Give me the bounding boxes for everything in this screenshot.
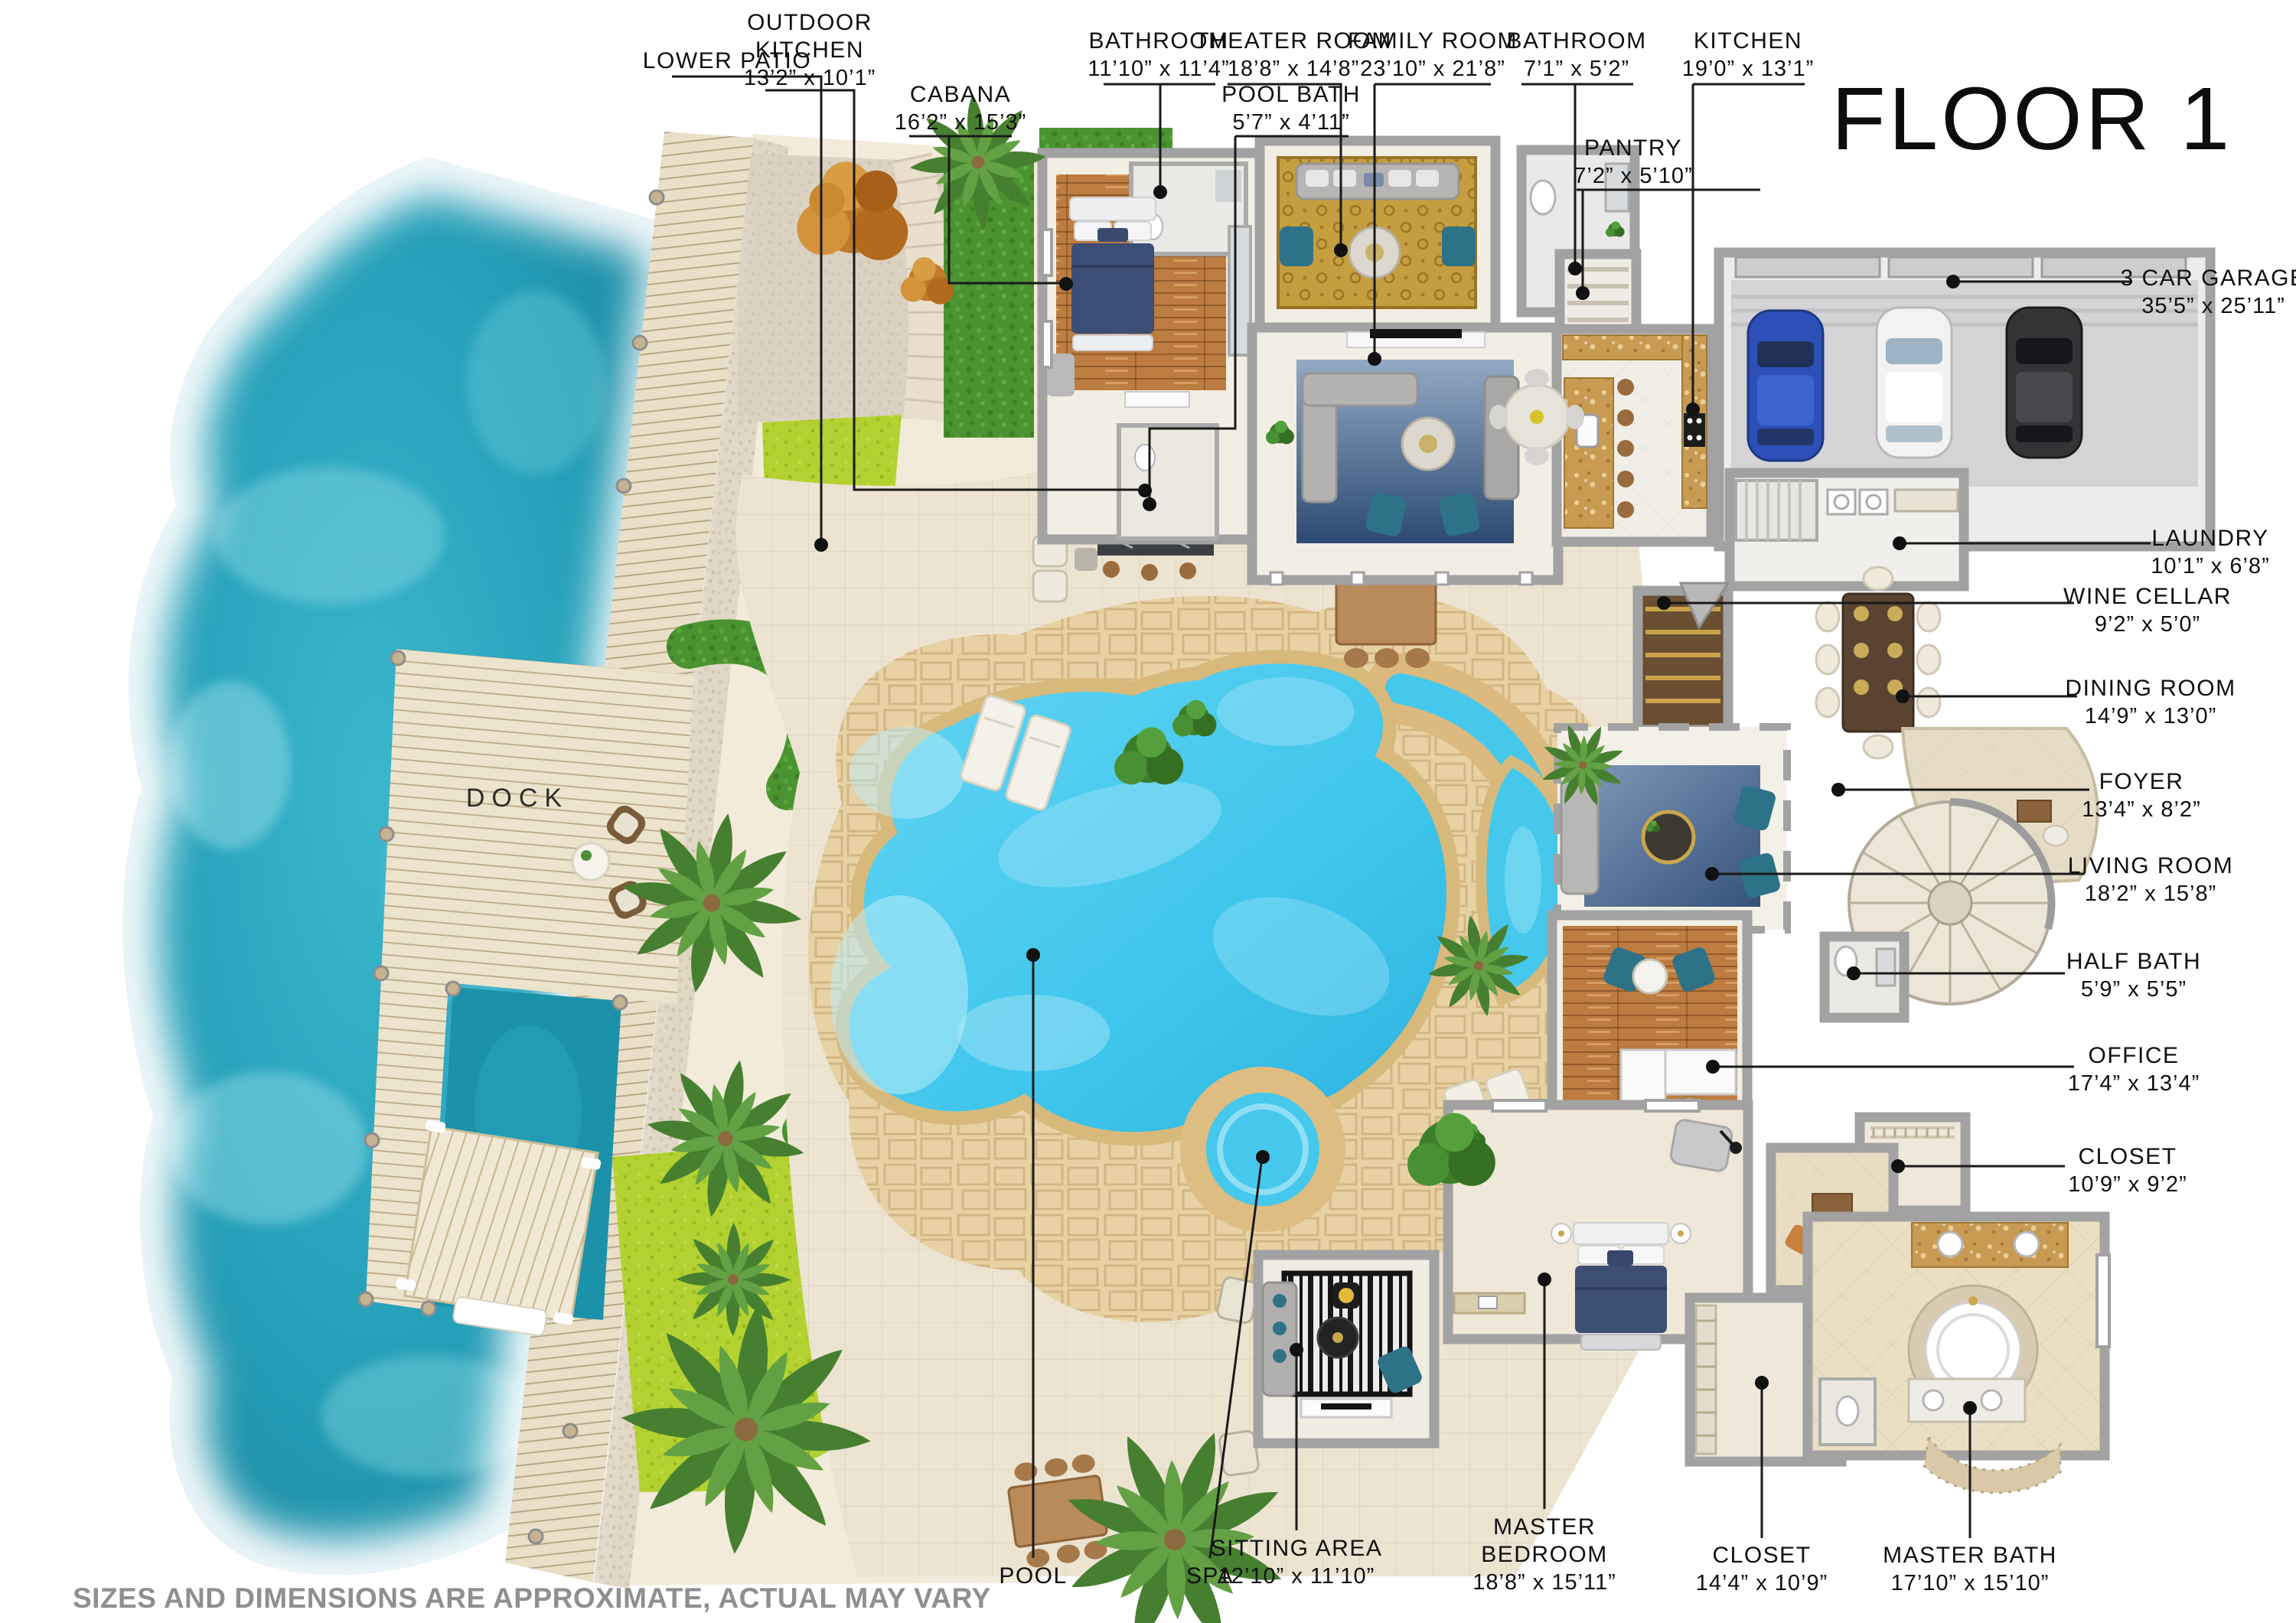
room-label-closet: CLOSET 10’9” x 9’2” — [2068, 1143, 2187, 1198]
room-label-laundry: LAUNDRY 10’1” x 6’8” — [2151, 525, 2269, 580]
room-label-cabana: CABANA 16’2” x 15’3” — [895, 81, 1027, 136]
room-label-living: LIVING ROOM 18’2” x 15’8” — [2068, 852, 2234, 908]
car-black — [2007, 308, 2082, 458]
spa — [1180, 1067, 1345, 1232]
sitting-area-room — [1258, 1255, 1434, 1443]
room-label-pool-bath: POOL BATH 5’7” x 4’11” — [1221, 81, 1361, 136]
master-bath — [1808, 1217, 2105, 1493]
laundry-block — [1730, 473, 1964, 586]
car-white — [1877, 308, 1952, 458]
car-blue — [1748, 311, 1823, 461]
floor-plan-page: FLOOR 1 LOWER PATIO OUTDOOR KITCHEN 13’2… — [0, 0, 2296, 1623]
kitchen — [1557, 329, 1711, 542]
wine-cellar — [1638, 583, 1728, 730]
room-label-master-closet: CLOSET 14’4” x 10’9” — [1696, 1542, 1828, 1597]
room-label-master-bath: MASTER BATH 17’10” x 15’10” — [1883, 1542, 2057, 1597]
room-label-sitting-area: SITTING AREA 12’10” x 11’10” — [1211, 1535, 1383, 1590]
cabana-bed — [1070, 197, 1156, 350]
theater-room — [1260, 141, 1495, 328]
room-label-bathroom: BATHROOM 7’1” x 5’2” — [1506, 28, 1646, 83]
room-label-garage: 3 CAR GARAGE 35’5” x 25’11” — [2120, 265, 2296, 320]
family-room — [1252, 328, 1558, 585]
garage-doors — [1736, 257, 2186, 277]
floor-plan-scene — [0, 0, 2296, 1623]
room-label-pantry: PANTRY 7’2” x 5’10” — [1574, 135, 1692, 190]
room-label-family: FAMILY ROOM 23’10” x 21’8” — [1348, 28, 1518, 83]
area-label-dock: DOCK — [466, 784, 569, 813]
half-bath — [1825, 937, 1904, 1018]
room-label-dining: DINING ROOM 14’9” x 13’0” — [2065, 675, 2236, 730]
room-label-master-bedroom: MASTER BEDROOM 18’8” x 15’11” — [1468, 1514, 1621, 1596]
room-label-foyer: FOYER 13’4” x 8’2” — [2082, 768, 2200, 823]
disclaimer-text: SIZES AND DIMENSIONS ARE APPROXIMATE, AC… — [73, 1582, 991, 1615]
room-label-outdoor-kitchen: OUTDOOR KITCHEN 13’2” x 10’1” — [733, 9, 886, 92]
room-label-office: OFFICE 17’4” x 13’4” — [2068, 1042, 2200, 1097]
pool — [830, 657, 1453, 1143]
floor-title: FLOOR 1 — [1831, 67, 2232, 170]
area-label-pool: POOL — [999, 1563, 1067, 1590]
room-label-half-bath: HALF BATH 5’9” x 5’5” — [2066, 948, 2201, 1003]
room-label-kitchen: KITCHEN 19’0” x 13’1” — [1682, 28, 1815, 83]
room-label-wine-cellar: WINE CELLAR 9’2” x 5’0” — [2063, 583, 2232, 638]
